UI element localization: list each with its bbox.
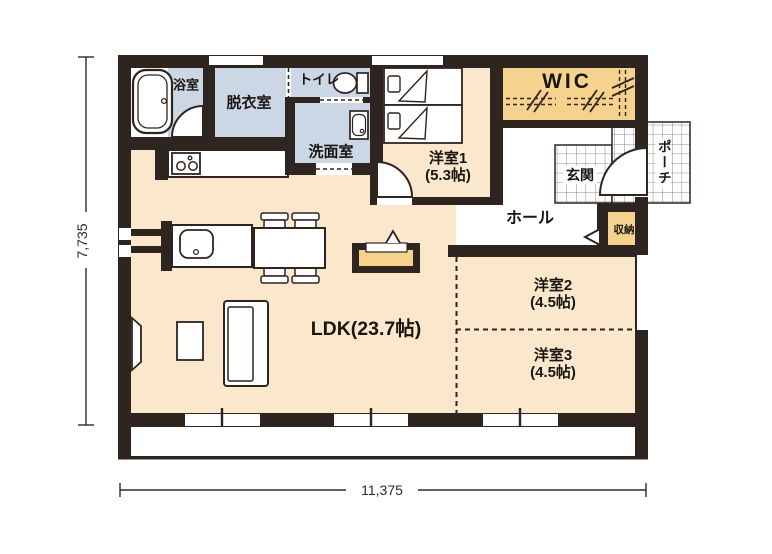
wall-segment xyxy=(155,140,168,180)
room-size: (5.3帖) xyxy=(425,167,471,184)
room-label-dressing: 脱衣室 xyxy=(226,94,271,111)
kitchen-sink-icon xyxy=(180,230,213,258)
side-table-icon xyxy=(177,322,203,360)
pillow xyxy=(388,76,400,92)
dining-table-icon xyxy=(254,228,325,268)
room-label-entrance: 玄関 xyxy=(563,166,597,184)
deck-strip xyxy=(118,427,648,460)
wall-segment xyxy=(118,55,131,427)
floor-plan-drawing xyxy=(0,0,772,554)
bathtub-icon xyxy=(133,70,172,133)
wall-segment xyxy=(203,68,215,137)
single-bed-icon xyxy=(384,105,462,143)
room-label-hall: ホール xyxy=(506,210,554,228)
room-label-bathroom: 浴室 xyxy=(173,79,199,94)
room-label-washroom: 洗面室 xyxy=(308,143,353,160)
shelf-bar xyxy=(131,229,161,236)
room-label-ldk: LDK(23.7帖) xyxy=(311,318,422,340)
door-opening xyxy=(377,197,412,205)
wall-segment xyxy=(448,245,648,257)
room-label-storage: 収納 xyxy=(614,224,635,236)
wall-segment xyxy=(635,55,648,427)
floor-plan: 浴室 脱衣室 トイレ 洗面室 洋室1 (5.3帖) WIC 玄関 ポーチ ホール… xyxy=(0,0,772,554)
room-label-bedroom1: 洋室1 (5.3帖) xyxy=(425,150,471,185)
window xyxy=(372,56,443,65)
wall-segment xyxy=(490,55,503,205)
beds xyxy=(384,68,462,143)
wall-segment xyxy=(118,137,295,150)
wall-segment xyxy=(285,97,295,165)
room-size: (4.5帖) xyxy=(530,364,576,381)
washbasin-icon xyxy=(350,111,368,139)
kitchen-counter xyxy=(168,150,288,177)
sofa-icon xyxy=(224,301,268,386)
room-name: 洋室3 xyxy=(530,347,576,364)
room-label-bedroom3: 洋室3 (4.5帖) xyxy=(530,347,576,382)
room-label-wic: WIC xyxy=(542,70,592,94)
single-bed-icon xyxy=(384,68,462,105)
room-name: 洋室1 xyxy=(425,150,471,167)
room-size: (4.5帖) xyxy=(530,294,576,311)
wall-segment xyxy=(503,120,635,128)
dimension-height-label: 7,735 xyxy=(74,223,90,258)
wall-segment xyxy=(363,97,370,103)
window xyxy=(209,56,263,65)
room-label-porch: ポーチ xyxy=(655,138,671,189)
wall-segment xyxy=(291,97,320,103)
room-label-toilet: トイレ xyxy=(299,72,340,88)
wall-segment xyxy=(597,203,648,212)
shelf-bar xyxy=(131,246,161,253)
wall-segment xyxy=(285,163,316,175)
window xyxy=(637,255,648,330)
room-name: 洋室2 xyxy=(530,277,576,294)
room-label-bedroom2: 洋室2 (4.5帖) xyxy=(530,277,576,312)
dimension-width-label: 11,375 xyxy=(357,482,407,498)
kitchen-stove-icon xyxy=(172,153,200,174)
pillow xyxy=(388,113,400,129)
island-side-panel xyxy=(161,221,172,271)
window xyxy=(119,228,131,240)
window xyxy=(119,245,131,257)
tv-icon xyxy=(132,318,141,370)
